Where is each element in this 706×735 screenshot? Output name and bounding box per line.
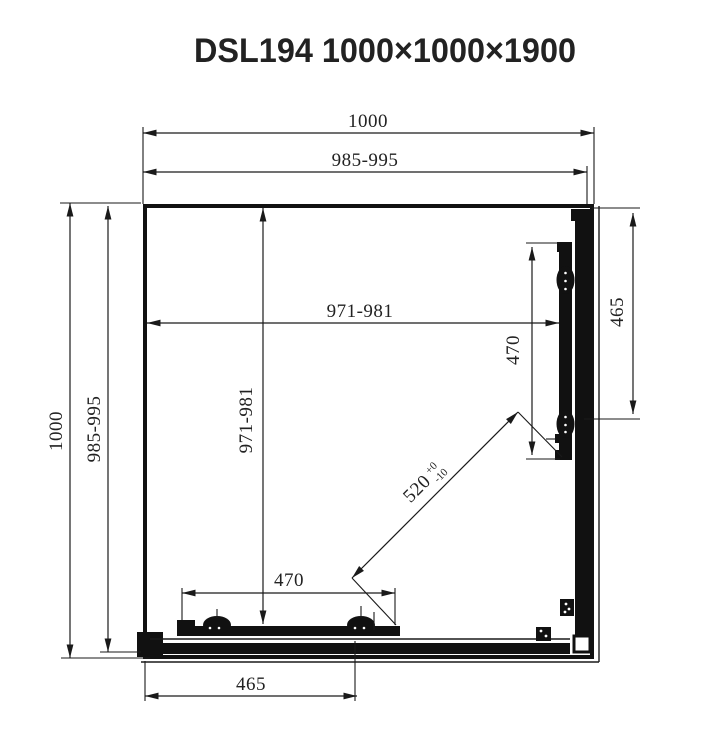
stopper-detail-dot (564, 611, 567, 614)
diagonal-dimension-label: 520 +0 -10 (399, 457, 451, 509)
roller-detail-dot (354, 627, 357, 630)
dimension-inner-width: 971-981 (147, 301, 559, 323)
roller-detail-dot (564, 416, 567, 419)
dimension-value: 465 (607, 297, 628, 327)
dimension-value: 1000 (46, 411, 67, 451)
right-sliding-door-assembly (546, 209, 591, 636)
bottom-sliding-door-assembly (137, 606, 590, 657)
dimension-top-inner: 985-995 (143, 150, 587, 204)
roller-detail-dot (218, 627, 221, 630)
dimension-value: 971-981 (236, 387, 257, 454)
roller-detail-dot (363, 627, 366, 630)
bottom-door-left-cap (177, 620, 195, 636)
right-track-bar (575, 209, 590, 636)
dimension-left-inner: 985-995 (84, 206, 141, 652)
roller-detail-dot (564, 431, 567, 434)
dimension-value: 465 (236, 674, 266, 695)
enclosure-outer-frame (145, 206, 592, 657)
technical-drawing-page: DSL194 1000×1000×1900 (0, 0, 706, 735)
dimension-value: 985-995 (332, 150, 399, 171)
roller-detail-dot (564, 288, 567, 291)
dimension-right-door: 470 (503, 243, 560, 459)
corner-post (574, 636, 590, 652)
stopper-detail-dot (540, 630, 543, 633)
bottom-track-bar (146, 643, 570, 654)
stopper-detail-dot (565, 603, 568, 606)
dimension-value: 520 (399, 471, 435, 507)
bottom-door-roller-right (347, 616, 375, 634)
right-roller-bolt (555, 434, 562, 443)
dimension-value: 971-981 (327, 301, 394, 322)
dimension-value: 470 (274, 570, 304, 591)
roller-detail-dot (564, 272, 567, 275)
roller-detail-dot (564, 424, 567, 427)
right-door-stopper-block (560, 599, 574, 616)
shower-enclosure-plan-drawing: DSL194 1000×1000×1900 (0, 0, 706, 735)
stopper-detail-dot (568, 608, 571, 611)
dimension-line (352, 412, 518, 578)
dimension-value: 1000 (348, 111, 388, 132)
stopper-detail-dot (545, 635, 548, 638)
roller-detail-dot (209, 627, 212, 630)
dimension-inner-depth: 971-981 (236, 208, 263, 624)
roller-detail-dot (564, 280, 567, 283)
drawing-title: DSL194 1000×1000×1900 (194, 32, 576, 70)
dimension-value: 985-995 (84, 396, 105, 463)
bottom-door-stopper-block (536, 627, 551, 641)
dimension-value: 470 (503, 335, 524, 365)
bottom-door-roller-left (203, 616, 231, 634)
